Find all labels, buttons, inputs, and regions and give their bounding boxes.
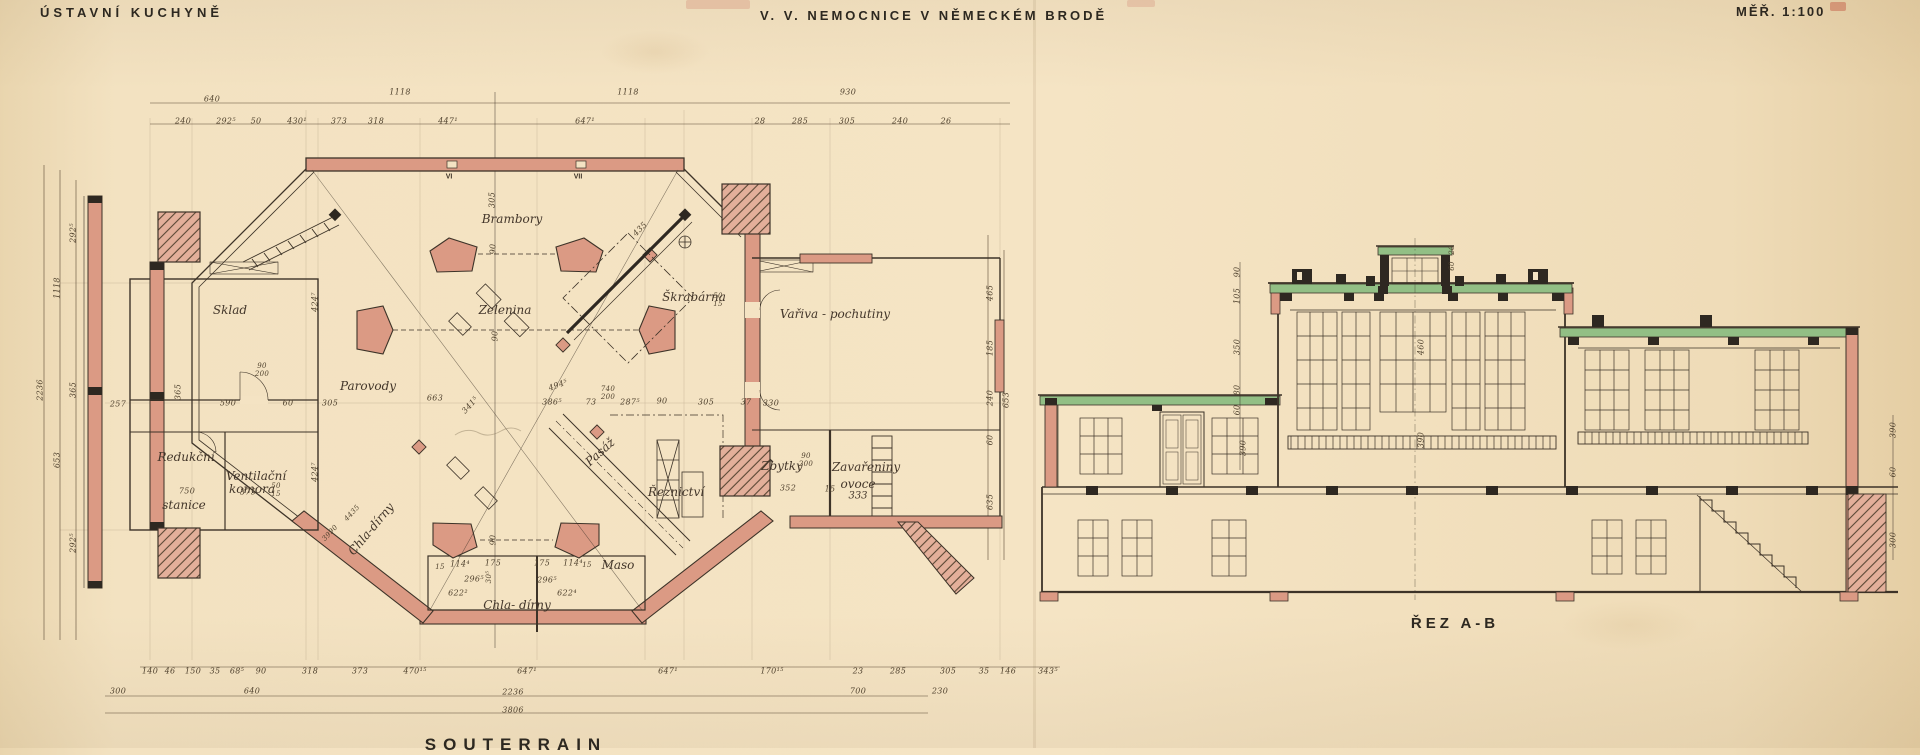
room-label: Zbytky — [761, 459, 803, 473]
dimension-label: 622² — [448, 589, 468, 598]
dimension-label: 365 — [69, 382, 78, 398]
room-label: ovoce — [840, 477, 875, 491]
dimension-label: 90 — [489, 244, 498, 255]
room-label: Sklad — [213, 303, 247, 317]
room-label: 333 — [848, 491, 867, 502]
dimension-label: 373 — [331, 117, 347, 126]
dimension-label: 386⁵ — [542, 398, 562, 407]
dimension-label: 200 — [799, 460, 813, 468]
dimension-label: 175 — [485, 559, 501, 568]
dimension-label: 257 — [110, 400, 126, 409]
dimension-label: 663 — [427, 394, 443, 403]
dimension-label: 330 — [763, 399, 779, 408]
dimension-label: 460 — [1417, 339, 1426, 355]
dimension-label: 305 — [940, 667, 956, 676]
dimension-label: 146 — [1000, 667, 1016, 676]
dimension-label: 240 — [175, 117, 191, 126]
dimension-label: 424⁷ — [311, 292, 320, 312]
room-label: Parovody — [340, 379, 396, 393]
dimension-label: 292⁵ — [69, 223, 78, 243]
dimension-label: 114⁴ — [450, 560, 470, 569]
dimension-label: 60 — [1233, 405, 1242, 416]
room-label: stanice — [162, 498, 206, 512]
dimension-label: 90 — [256, 667, 267, 676]
dimension-label: 653 — [1002, 392, 1011, 408]
dimension-label: 46 — [165, 667, 176, 676]
dimension-label: 390 — [1889, 422, 1898, 438]
dimension-label: 37 — [741, 398, 752, 407]
dimension-label: 80 — [1233, 385, 1242, 396]
dimension-label: 23 — [853, 667, 864, 676]
dimension-label: 390 — [1417, 432, 1426, 448]
dimension-label: 2236 — [36, 379, 45, 401]
dimension-label: 300 — [1889, 532, 1898, 548]
dimension-label: 635 — [986, 494, 995, 510]
grid-numeral: VII — [574, 174, 583, 181]
dimension-label: 287⁵ — [620, 398, 640, 407]
dimension-label: 30⁵ — [485, 571, 493, 584]
dimension-label: 2236 — [502, 688, 524, 697]
dimension-label: 740 — [601, 385, 615, 393]
dimension-label: 60 — [1889, 467, 1898, 478]
dimension-label: 930 — [840, 88, 856, 97]
dimension-label: 424⁷ — [311, 462, 320, 482]
dimension-label: 590 — [220, 399, 236, 408]
annotation-layer: BramborySkladZeleninaŠkrabárnaVařiva - p… — [0, 0, 1920, 748]
dimension-label: 3806 — [502, 706, 524, 715]
dimension-label: 365 — [174, 384, 183, 400]
dimension-label: 430¹ — [287, 117, 307, 126]
dimension-label: 230 — [932, 687, 948, 696]
dimension-label: 50 — [713, 292, 723, 300]
dimension-label: 3990 — [321, 523, 340, 542]
dimension-label: 150 — [185, 667, 201, 676]
dimension-label: 15 — [582, 561, 592, 569]
dimension-label: 373 — [352, 667, 368, 676]
dimension-label: 15 — [825, 485, 836, 494]
section-caption: ŘEZ A-B — [1411, 615, 1499, 632]
dimension-label: 15 — [713, 300, 723, 308]
room-label: Řeznictví — [648, 485, 704, 499]
dimension-label: 105 — [1233, 288, 1242, 304]
room-label: Vařiva - pochutiny — [780, 307, 890, 321]
dimension-label: 435 — [631, 220, 649, 238]
dimension-label: 200 — [601, 393, 615, 401]
dimension-label: 15 — [271, 490, 281, 498]
dimension-label: 305 — [322, 399, 338, 408]
dimension-label: 200 — [255, 370, 269, 378]
dimension-label: 700 — [850, 687, 866, 696]
dimension-label: 285 — [792, 117, 808, 126]
dimension-label: 240 — [986, 390, 995, 406]
dimension-label: 90 — [801, 452, 811, 460]
dimension-label: 296⁵ — [464, 575, 484, 584]
dimension-label: 60 — [283, 399, 294, 408]
room-label: Ventilační — [226, 469, 286, 483]
dimension-label: 447¹ — [438, 117, 458, 126]
dimension-label: 90 — [657, 397, 668, 406]
room-label: Redukční — [157, 450, 214, 464]
dimension-label: 4435 — [343, 503, 362, 522]
dimension-label: 28 — [755, 117, 766, 126]
room-label: Chla- dírny — [483, 598, 551, 612]
dimension-label: 90 — [489, 535, 498, 546]
room-label: Brambory — [482, 212, 543, 226]
dimension-label: 35 — [210, 667, 221, 676]
plan-caption: SOUTERRAIN — [425, 735, 607, 755]
dimension-label: 318 — [302, 667, 318, 676]
room-label: Pasáž — [583, 435, 618, 468]
room-label: Maso — [602, 558, 635, 572]
dimension-label: 300 — [110, 687, 126, 696]
grid-numeral: VI — [446, 174, 453, 181]
dimension-label: 1118 — [389, 88, 411, 97]
dimension-label: 185 — [986, 340, 995, 356]
dimension-label: 390 — [1239, 440, 1248, 456]
dimension-label: 647¹ — [575, 117, 595, 126]
dimension-label: 296⁵ — [537, 576, 557, 585]
dimension-label: 305 — [698, 398, 714, 407]
dimension-label: 343⁵ — [1038, 667, 1058, 676]
dimension-label: 90 — [1233, 267, 1242, 278]
dimension-label: 140 — [142, 667, 158, 676]
dimension-label: 26 — [941, 117, 952, 126]
dimension-label: 292⁵ — [216, 117, 236, 126]
dimension-label: 465 — [986, 285, 995, 301]
dimension-label: 622⁴ — [557, 589, 577, 598]
room-label: Zelenina — [479, 303, 532, 317]
dimension-label: 640 — [204, 95, 220, 104]
dimension-label: 175 — [534, 559, 550, 568]
dimension-label: 15 — [435, 563, 445, 571]
dimension-label: 653 — [53, 452, 62, 468]
dimension-label: 647¹ — [517, 667, 537, 676]
dimension-label: 60 — [986, 435, 995, 446]
dimension-label: 50 — [251, 117, 262, 126]
dimension-label: 285 — [890, 667, 906, 676]
dimension-label: 305 — [839, 117, 855, 126]
dimension-label: 375 — [240, 488, 256, 497]
dimension-label: 170¹⁵ — [760, 667, 783, 676]
dimension-label: 1118 — [617, 88, 639, 97]
dimension-label: 647¹ — [658, 667, 678, 676]
dimension-label: 35 — [979, 667, 990, 676]
room-label: Zavařeniny — [832, 460, 900, 474]
dimension-label: 292⁵ — [69, 533, 78, 553]
dimension-label: 1118 — [53, 277, 62, 299]
dimension-label: 318 — [368, 117, 384, 126]
dimension-label: 73 — [586, 398, 597, 407]
dimension-label: 240 — [892, 117, 908, 126]
dimension-label: 640 — [244, 687, 260, 696]
dimension-label: 470¹⁵ — [403, 667, 426, 676]
dimension-label: 50 — [271, 482, 281, 490]
dimension-label: 68⁵ — [230, 667, 244, 676]
dimension-label: 305 — [488, 192, 497, 208]
dimension-label: 341⁵ — [460, 395, 480, 416]
dimension-label: 750 — [179, 487, 195, 496]
dimension-label: 60 — [1448, 261, 1456, 271]
dimension-label: 90 — [491, 331, 500, 342]
dimension-label: 114⁴ — [563, 559, 583, 568]
dimension-label: 352 — [780, 484, 796, 493]
dimension-label: 90 — [257, 362, 267, 370]
dimension-label: 20 — [1448, 245, 1456, 255]
blueprint-sheet: { "titles": { "left": "ÚSTAVNÍ KUCHYNĚ",… — [0, 0, 1920, 748]
dimension-label: 494⁵ — [547, 377, 569, 392]
dimension-label: 350 — [1233, 339, 1242, 355]
